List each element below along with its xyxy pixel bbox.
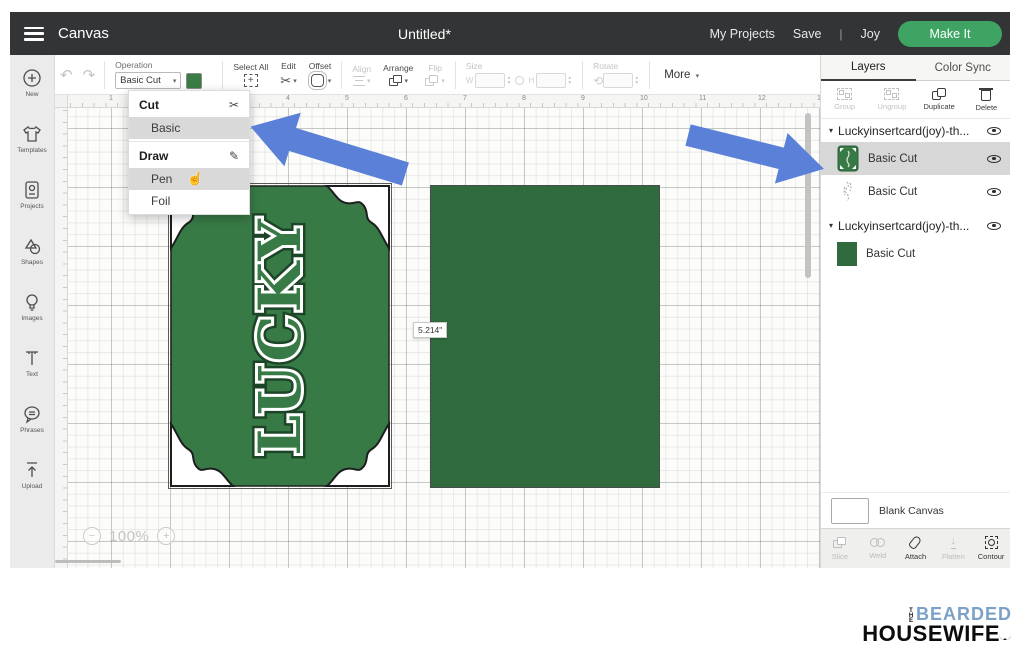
- contour-icon: [985, 536, 998, 549]
- make-it-button[interactable]: Make It: [898, 21, 1002, 47]
- height-stepper: ▲▼: [567, 76, 572, 86]
- pencil-icon: ✎: [229, 149, 239, 163]
- layer-row-selected[interactable]: Basic Cut: [821, 142, 1010, 175]
- operation-dropdown-menu: Cut ✂ Basic Draw ✎ Pen ☝ Foil: [128, 90, 250, 215]
- plus-circle-icon: [22, 68, 42, 88]
- edit-toolbar: ↶ ↷ Operation Basic Cut ▾ Select All +: [55, 55, 820, 95]
- menu-item-pen[interactable]: Pen ☝: [129, 168, 249, 190]
- chevron-down-icon: ▾: [293, 77, 297, 85]
- operation-label: Operation: [115, 60, 152, 70]
- width-stepper: ▲▼: [506, 76, 511, 86]
- rotate-input: [603, 73, 633, 88]
- sidebar-item-images[interactable]: Images: [10, 279, 54, 335]
- lock-icon: [515, 76, 524, 85]
- select-all-group[interactable]: Select All +: [233, 62, 268, 87]
- zoom-level: 100%: [109, 528, 149, 545]
- menu-item-basic[interactable]: Basic: [129, 117, 249, 139]
- weld-button: Weld: [859, 529, 897, 568]
- card-word: LUCKY LUCKY LUCKY: [246, 216, 314, 456]
- chevron-down-icon: ▾: [328, 77, 332, 85]
- layer-thumbnail-card: [837, 145, 859, 172]
- sidebar-item-shapes[interactable]: Shapes: [10, 223, 54, 279]
- offset-icon: [311, 74, 324, 87]
- offset-group[interactable]: Offset ▾: [309, 61, 332, 88]
- contour-button[interactable]: Contour: [972, 529, 1010, 568]
- beard-icon: [998, 634, 1012, 645]
- arrange-group[interactable]: Arrange ▾: [383, 63, 413, 87]
- dropdown-section-draw: Draw ✎: [129, 144, 249, 168]
- text-T-icon: [22, 348, 42, 368]
- rotate-stepper: ▲▼: [634, 76, 639, 86]
- tab-color-sync[interactable]: Color Sync: [916, 55, 1011, 81]
- lucky-card-object[interactable]: LUCKY LUCKY LUCKY: [168, 183, 392, 489]
- duplicate-button[interactable]: Duplicate: [916, 81, 963, 118]
- slice-button: Slice: [821, 529, 859, 568]
- layer-thumbnail-solid: [837, 242, 857, 266]
- arrange-icon: [389, 75, 403, 87]
- dimension-label: 5.214": [413, 322, 447, 338]
- trash-icon: [981, 90, 991, 101]
- page: Canvas Untitled* My Projects Save | Joy …: [0, 0, 1024, 651]
- flatten-button: ↓ Flatten: [934, 529, 972, 568]
- layer-row[interactable]: Basic Cut: [821, 175, 1010, 208]
- dropdown-section-cut: Cut ✂: [129, 93, 249, 117]
- ungroup-button: Ungroup: [868, 81, 915, 118]
- redo-icon[interactable]: ↷: [78, 66, 101, 84]
- sidebar-item-upload[interactable]: Upload: [10, 447, 54, 503]
- collapse-triangle-icon[interactable]: ▾: [829, 221, 833, 230]
- horizontal-scrollbar[interactable]: [55, 560, 121, 563]
- layer-tools-bar: Slice Weld Attach ↓ Flatten Contour: [821, 528, 1010, 568]
- paperclip-icon: [908, 535, 922, 550]
- visibility-eye-icon[interactable]: [987, 188, 1001, 196]
- menu-hamburger-icon[interactable]: [24, 27, 44, 41]
- group-button: Group: [821, 81, 868, 118]
- duplicate-icon: [932, 88, 946, 100]
- sidebar-item-projects[interactable]: Projects: [10, 167, 54, 223]
- sidebar-item-templates[interactable]: Templates: [10, 111, 54, 167]
- rotate-group: Rotate ⟲ ▲▼: [593, 61, 639, 88]
- tshirt-icon: [22, 124, 42, 144]
- svg-text:LUCKY: LUCKY: [246, 216, 314, 456]
- ungroup-icon: [884, 88, 899, 100]
- upload-arrow-icon: [22, 460, 42, 480]
- edit-group[interactable]: Edit ✂ ▾: [280, 61, 296, 89]
- attach-button[interactable]: Attach: [897, 529, 935, 568]
- vertical-ruler: 23456789: [55, 108, 68, 568]
- operation-select[interactable]: Basic Cut ▾: [115, 72, 181, 89]
- menu-item-foil[interactable]: Foil: [129, 190, 249, 212]
- ruler-corner: [55, 95, 68, 108]
- zoom-out-button[interactable]: −: [83, 527, 101, 545]
- green-rectangle-object[interactable]: [430, 185, 660, 488]
- rotate-icon: ⟲: [593, 74, 603, 88]
- speech-bubble-icon: [22, 404, 42, 424]
- undo-icon[interactable]: ↶: [55, 66, 78, 84]
- select-all-icon: +: [244, 74, 258, 87]
- size-group: Size W ▲▼ H ▲▼: [466, 61, 572, 88]
- sidebar-item-text[interactable]: Text: [10, 335, 54, 391]
- flip-group: Flip ▾: [425, 63, 445, 87]
- height-input: [536, 73, 566, 88]
- layer-row[interactable]: Basic Cut: [821, 237, 1010, 270]
- sidebar-item-phrases[interactable]: Phrases: [10, 391, 54, 447]
- vertical-scrollbar[interactable]: [805, 113, 811, 278]
- chevron-down-icon: ▾: [696, 73, 700, 80]
- visibility-eye-icon[interactable]: [987, 222, 1001, 230]
- machine-selector[interactable]: Joy: [861, 27, 880, 41]
- layers-panel: Layers Color Sync Group Ungroup Duplicat…: [820, 55, 1010, 568]
- layer-thumbnail-outline: [837, 178, 859, 205]
- width-input: [475, 73, 505, 88]
- design-app-window: Canvas Untitled* My Projects Save | Joy …: [10, 12, 1010, 568]
- flatten-icon: ↓: [951, 536, 957, 549]
- flip-icon: [425, 75, 439, 87]
- scissors-icon: ✂: [229, 98, 239, 112]
- slice-icon: [833, 537, 847, 549]
- weld-icon: [870, 538, 885, 548]
- tab-layers[interactable]: Layers: [821, 55, 916, 81]
- delete-button[interactable]: Delete: [963, 81, 1010, 118]
- layer-group-header[interactable]: ▾ Luckyinsertcard(joy)-th...: [821, 214, 1010, 237]
- align-icon: [353, 76, 365, 86]
- page-title: Canvas: [58, 25, 109, 42]
- shapes-icon: [22, 236, 42, 256]
- more-button[interactable]: More ▾: [664, 69, 699, 81]
- hand-cursor-icon: ☝: [186, 170, 204, 188]
- sidebar-item-new[interactable]: New: [10, 55, 54, 111]
- zoom-control: − 100% +: [83, 527, 175, 545]
- logo-line2: HOUSEWIFE: [862, 623, 1012, 645]
- operation-group: Operation Basic Cut ▾: [115, 60, 202, 89]
- blank-canvas-row[interactable]: Blank Canvas: [821, 492, 1010, 528]
- visibility-eye-icon[interactable]: [987, 127, 1001, 135]
- zoom-in-button[interactable]: +: [157, 527, 175, 545]
- document-title[interactable]: Untitled*: [398, 26, 451, 42]
- collapse-triangle-icon[interactable]: ▾: [829, 126, 833, 135]
- edit-scissors-icon: ✂: [280, 73, 291, 89]
- layer-group-header[interactable]: ▾ Luckyinsertcard(joy)-th...: [821, 119, 1010, 142]
- topbar-divider: |: [839, 27, 842, 41]
- chevron-down-icon: ▾: [173, 77, 177, 85]
- left-sidebar: New Templates Projects Shapes Images Tex…: [10, 55, 55, 568]
- color-swatch[interactable]: [186, 73, 202, 89]
- save-button[interactable]: Save: [793, 27, 822, 41]
- project-card-icon: [22, 180, 42, 200]
- top-bar: Canvas Untitled* My Projects Save | Joy …: [10, 12, 1010, 55]
- group-icon: [837, 88, 852, 100]
- lightbulb-icon: [22, 292, 42, 312]
- my-projects-link[interactable]: My Projects: [710, 27, 775, 41]
- align-group: Align ▾: [352, 64, 371, 86]
- visibility-eye-icon[interactable]: [987, 155, 1001, 163]
- bearded-housewife-logo: THE BEARDED HOUSEWIFE: [862, 606, 1012, 645]
- blank-canvas-thumbnail: [831, 498, 869, 524]
